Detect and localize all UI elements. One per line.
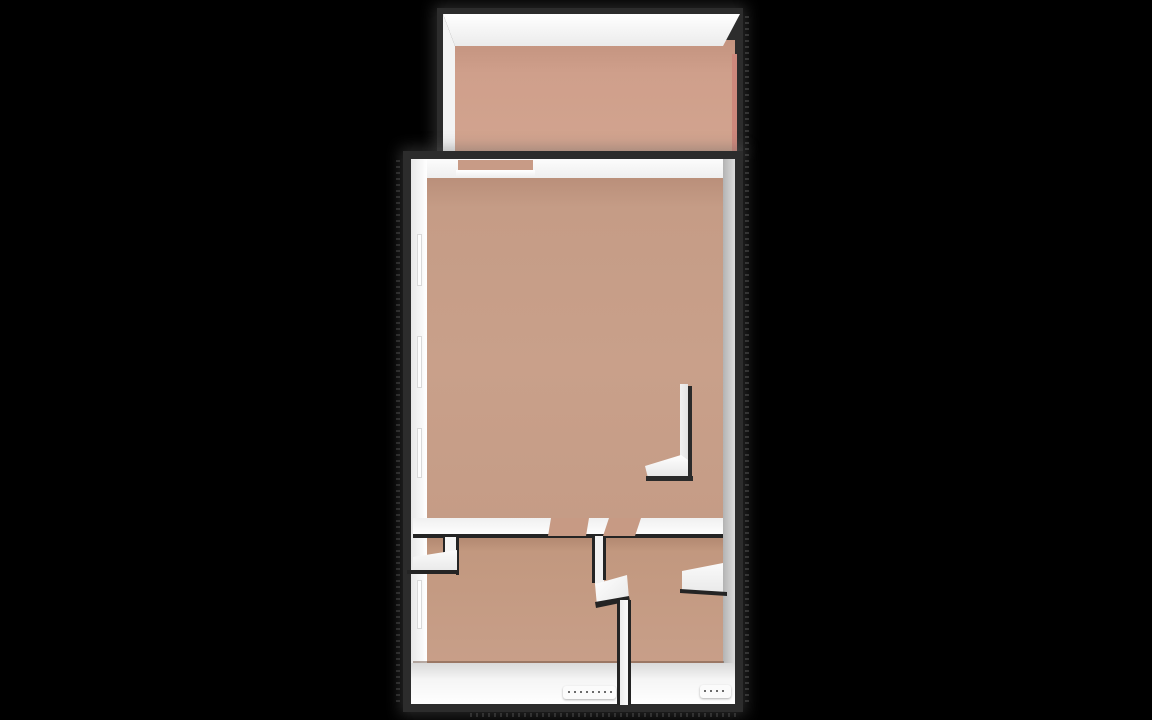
window-west-4 (417, 580, 422, 629)
divider-upper-edge-right (603, 536, 606, 580)
lower-rooms-floor (426, 536, 724, 666)
shadow-dither-right (745, 16, 749, 706)
door-opening-right (603, 518, 641, 536)
shadow-dither-left (396, 160, 400, 705)
divider-lower-top (620, 600, 628, 705)
partition-vertical-shadow (688, 386, 692, 480)
balcony-back-wall-top (443, 14, 740, 46)
window-west-2 (417, 336, 422, 388)
door-opening-left (548, 518, 589, 536)
balcony-floor (455, 40, 735, 151)
divider-lower-edge-right (628, 600, 631, 705)
floorplan-stage (0, 0, 1152, 720)
partition-foot-edge (646, 476, 693, 481)
window-west-3 (417, 428, 422, 478)
closet-wall-horizontal-edge (407, 570, 459, 574)
east-wall-face (723, 159, 735, 665)
dimension-tag-right-dots (704, 690, 728, 692)
shadow-dither-bottom (470, 713, 740, 717)
balcony-door-sill (456, 170, 535, 178)
dimension-tag-left-dots (568, 691, 612, 693)
balcony-floor-edge (732, 54, 737, 151)
window-west-1 (417, 234, 422, 286)
